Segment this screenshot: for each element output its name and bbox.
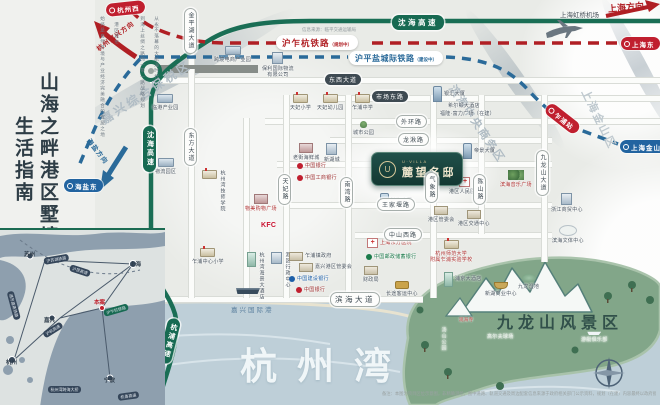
school-icon [293, 94, 308, 103]
yacht-icon [587, 329, 601, 335]
poi: 浙江商贸中心 [551, 193, 583, 213]
station-badge: 上海金山 [620, 140, 660, 153]
poi: 银汇大厦 [433, 86, 465, 102]
road-label: 陈山路 [473, 174, 486, 205]
poi-label: 滨海音乐广场 [500, 182, 532, 189]
poi-label: 临港产业园 [152, 105, 179, 112]
bank-icon [296, 287, 302, 293]
poi-label: 新湖城 [324, 157, 340, 164]
railway-label-huzhahang: 沪乍杭铁路（规划中） [276, 35, 358, 50]
hospital-icon: + [367, 238, 378, 248]
glow-circle [540, 140, 660, 380]
school-icon [444, 240, 459, 249]
rail-station-icon [623, 144, 629, 150]
station-name: 上海金山 [631, 142, 660, 152]
poi-label: 财政局 [363, 277, 379, 284]
project-logo-icon: U [379, 161, 396, 178]
poi: 嘉兴港区管委会 [299, 263, 352, 272]
building-icon [561, 193, 572, 205]
gov-icon [364, 266, 378, 275]
inset-city-label: 苏州 [24, 250, 35, 258]
trees-icon [508, 170, 524, 180]
road-line [150, 77, 660, 84]
poi-label: 游艇俱乐部 [581, 337, 608, 344]
poi: 跨境电商产业园 [214, 46, 251, 63]
road-label: 气象路 [425, 172, 438, 203]
poi-label: 老街海鲜城 [293, 155, 320, 162]
poi: 物美购物广场 [245, 194, 277, 212]
poi-label: 港区管委会 [428, 217, 455, 224]
bank-icon [297, 163, 303, 169]
poi-label: 天妃小学 [290, 105, 311, 112]
poi-label: 天妃幼儿园 [317, 105, 344, 112]
poi: 城市公园 [353, 121, 374, 136]
poi: 港区交通中心 [458, 210, 490, 227]
bank-icon [297, 175, 303, 181]
poi: 老街海鲜城 [293, 143, 320, 161]
gov-icon [434, 206, 448, 215]
poi-label: 浙江商贸中心 [551, 207, 583, 214]
road-label: 王家堰路 [377, 198, 415, 211]
railway-status: （规划中） [330, 42, 353, 47]
school-icon [323, 94, 338, 103]
poi-label: KFC [261, 221, 276, 230]
gov-icon [289, 252, 303, 261]
poi-label: 跨境电商产业园 [214, 57, 251, 64]
inset-route-pill: 通苏嘉甬铁路 [7, 291, 21, 321]
poi [236, 285, 260, 294]
road-label: 沈海高速 [392, 15, 444, 30]
poi-label: 物流园区 [155, 169, 176, 176]
factory-icon [158, 158, 174, 167]
poi: 游艇俱乐部 [581, 329, 608, 343]
poi: 临港产业园 [152, 94, 179, 111]
poi: 乍浦中心小学 [192, 248, 224, 265]
poi: 浦京大酒店 [444, 272, 482, 287]
poi-label: 新湖商业中心 [485, 291, 517, 298]
bank-icon [289, 276, 295, 282]
poi: 高尔夫球场 [487, 334, 514, 341]
road-label: 外环路 [396, 115, 427, 128]
poi: 观海寺 [459, 317, 473, 323]
poi: 物流园区 [155, 158, 176, 175]
poi-label: 中国邮政储蓄银行 [374, 254, 416, 261]
hotel-icon [247, 252, 256, 267]
rail-station-icon [109, 7, 116, 14]
poi: 滨海音乐广场 [500, 170, 532, 188]
poi-label: 杭州师范大学 附属乍浦实验学校 [430, 251, 472, 264]
poi-label: 银汇大厦 [444, 91, 465, 98]
poi-label: 观海寺 [459, 317, 473, 323]
jiaxing-port-label: 嘉兴国际港 [231, 304, 274, 314]
mall-icon [299, 143, 313, 153]
inset-city-label: 上海 [130, 260, 141, 268]
tower-icon [463, 143, 472, 159]
poi-label: 中国银行 [304, 287, 325, 294]
poi: 汤山公园 [440, 327, 447, 351]
gov-icon [467, 210, 481, 219]
poi-label: 城市公园 [353, 130, 374, 137]
poi: 九龙湿地 [518, 274, 539, 290]
poi-label: 九龙湿地 [518, 284, 539, 291]
station-name: 杭州西 [117, 2, 140, 14]
school-icon [202, 170, 217, 179]
boat-icon [494, 282, 508, 289]
station-badge: 上海东 [621, 37, 660, 50]
poi-label: 希尔顿大酒店 [448, 103, 480, 110]
school-icon [200, 248, 215, 257]
poi-label: 嘉兴港区管委会 [315, 264, 352, 271]
inset-city-label: 宁波 [104, 376, 115, 384]
road-label: 东方大道 [184, 128, 197, 166]
poi: 天妃幼儿园 [317, 94, 344, 111]
poi: 港区行政中心 [271, 252, 291, 288]
road-label: 龙湫路 [398, 133, 429, 146]
poi-label: 保利国际物流 有限公司 [262, 66, 294, 79]
poi-label: 浦京大酒店 [455, 276, 482, 283]
bank-icon [366, 254, 372, 260]
ship-icon [236, 285, 260, 294]
poi: 新湖商业中心 [485, 282, 517, 297]
inset-region-map: 上海苏州嘉兴杭州宁波沪苏湖铁路通苏嘉甬铁路沪昆高速沪乍杭铁路沪杭高速杭州湾跨海大… [0, 228, 165, 405]
poi: 港区管委会 [428, 206, 455, 223]
wetland-icon [522, 274, 536, 282]
poi: 滨海文体中心 [552, 225, 584, 244]
road-label: 中山西路 [384, 228, 422, 241]
inset-city-label: 嘉兴 [44, 316, 55, 324]
disclaimer-note: 备注：本图为项目区位示意图，非精确测绘；图中道路、轨道交通及周边配套信息来源于政… [382, 391, 656, 397]
poi-label: 物美购物广场 [245, 206, 277, 213]
poi: 保利国际物流 有限公司 [262, 52, 294, 79]
poi-label: 帝景大厦 [474, 148, 495, 155]
poi-label: 杭州湾技师学院 [219, 170, 226, 212]
inset-route-pill: 沪苏湖铁路 [43, 254, 69, 265]
poi: 福隆·富力广场（在建） [440, 111, 495, 118]
gov-icon [299, 263, 313, 272]
tower-icon [433, 86, 442, 102]
poi: 天妃小学 [290, 94, 311, 111]
station-name: 海盐东 [75, 181, 98, 191]
mall-icon [254, 194, 268, 204]
poi: 帝景大厦 [463, 143, 495, 159]
poi-label: 长途客运中心 [386, 291, 418, 298]
railway-name: 沪乍杭铁路 [282, 38, 330, 48]
road-label: 南湾路 [340, 177, 353, 208]
railway-status: （建设中） [415, 57, 438, 62]
page-title-secondary: 生活指南 [9, 116, 36, 204]
intro-text-2: 到海上丝绸之路的一带一路战略规划 [140, 16, 145, 109]
intro-text-3: 港区城市 [114, 22, 119, 45]
poi: 财政局 [363, 266, 379, 283]
intro-text-1: 从永不落幕的大航海时代 [154, 16, 159, 80]
road-label: 九龙山大道 [536, 150, 549, 196]
road-label: 沈海高速 [143, 126, 156, 172]
railway-label-hupingyan: 沪平盐城际铁路（建设中） [349, 51, 443, 65]
road-label: 市场东路 [372, 91, 408, 102]
poi: 中国建设银行 [289, 276, 329, 283]
page-title-primary: 山海之畔港区墅境 [34, 72, 61, 248]
poi-label: 乍浦中学 [352, 105, 373, 112]
road-label: 天妃路 [278, 174, 291, 205]
poi: 乍浦镇政府 [289, 252, 332, 261]
station-name: 上海东 [632, 39, 655, 49]
road-label: 金平湖大道 [184, 8, 197, 54]
station-badge: 海盐东 [64, 179, 103, 192]
hotel-icon [444, 272, 453, 287]
stadium-icon [559, 225, 577, 236]
inset-route-pill: 杭甬高速 [118, 391, 140, 401]
poi: 中国工商银行 [297, 175, 337, 182]
inset-route-pill: 沪昆高速 [69, 264, 91, 277]
poi: 希尔顿大酒店 [448, 103, 480, 110]
road-label: 东西大道 [325, 74, 361, 85]
office-icon [272, 52, 283, 64]
poi-label: 汤山公园 [440, 327, 447, 351]
poi: 长途客运中心 [386, 281, 418, 297]
rail-station-icon [624, 41, 630, 47]
poi: KFC [261, 221, 276, 230]
poi: 杭州湾技师学院 [202, 170, 226, 212]
factory-icon [225, 46, 241, 55]
inset-route-pill: 杭州湾跨海大桥 [48, 386, 81, 393]
school-icon [355, 94, 370, 103]
poi: 乍浦中学 [352, 94, 373, 111]
hongqiao-airport-label: 上海虹桥机场 [560, 9, 599, 19]
poi: 新湖城 [324, 143, 340, 163]
poi-label: 港区交通中心 [458, 221, 490, 228]
station-badge: 杭州西 [105, 0, 145, 17]
poi: 中国邮政储蓄银行 [366, 254, 416, 261]
factory-icon [157, 94, 173, 103]
location-map-poster: 山海之畔港区墅境 生活指南 从永不落幕的大航海时代 到海上丝绸之路的一带一路战略… [0, 0, 660, 405]
poi-label: 乍浦中心小学 [192, 259, 224, 266]
intro-text-4: 始终是自然环境与产业经济完美融合的宜居之地 [100, 16, 105, 138]
poi-label: 乍浦镇政府 [305, 253, 332, 260]
poi: 中国银行 [296, 287, 325, 294]
building-icon [271, 252, 282, 264]
inset-project-marker: 本案 [94, 298, 105, 306]
poi-label: 中国银行 [305, 163, 326, 170]
rail-station-icon [67, 183, 73, 189]
haiyan-direction-arrow [107, 147, 126, 177]
info-source-note: 信息来源：临平交通运输局 [302, 27, 356, 33]
hangzhou-bay-label: 杭州湾 [240, 336, 411, 390]
building-icon [326, 143, 337, 155]
bus-icon [395, 281, 409, 289]
road-label: 滨海大道 [330, 292, 380, 307]
poi-label: 中国建设银行 [297, 276, 329, 283]
inset-city-label: 杭州 [6, 358, 17, 366]
poi-label: 高尔夫球场 [487, 334, 514, 341]
poi: 中国银行 [297, 163, 326, 170]
inset-route-pill: 沪乍杭铁路 [103, 303, 129, 317]
project-card: U U·VILLA 麓望名邸 [371, 152, 463, 186]
poi-label: 中国工商银行 [305, 175, 337, 182]
railway-name: 沪平盐城际铁路 [355, 54, 415, 63]
poi-label: 福隆·富力广场（在建） [440, 111, 495, 118]
poi-label: 滨海文体中心 [552, 238, 584, 245]
poi: 杭州师范大学 附属乍浦实验学校 [430, 240, 472, 264]
tree-icon [360, 121, 367, 128]
